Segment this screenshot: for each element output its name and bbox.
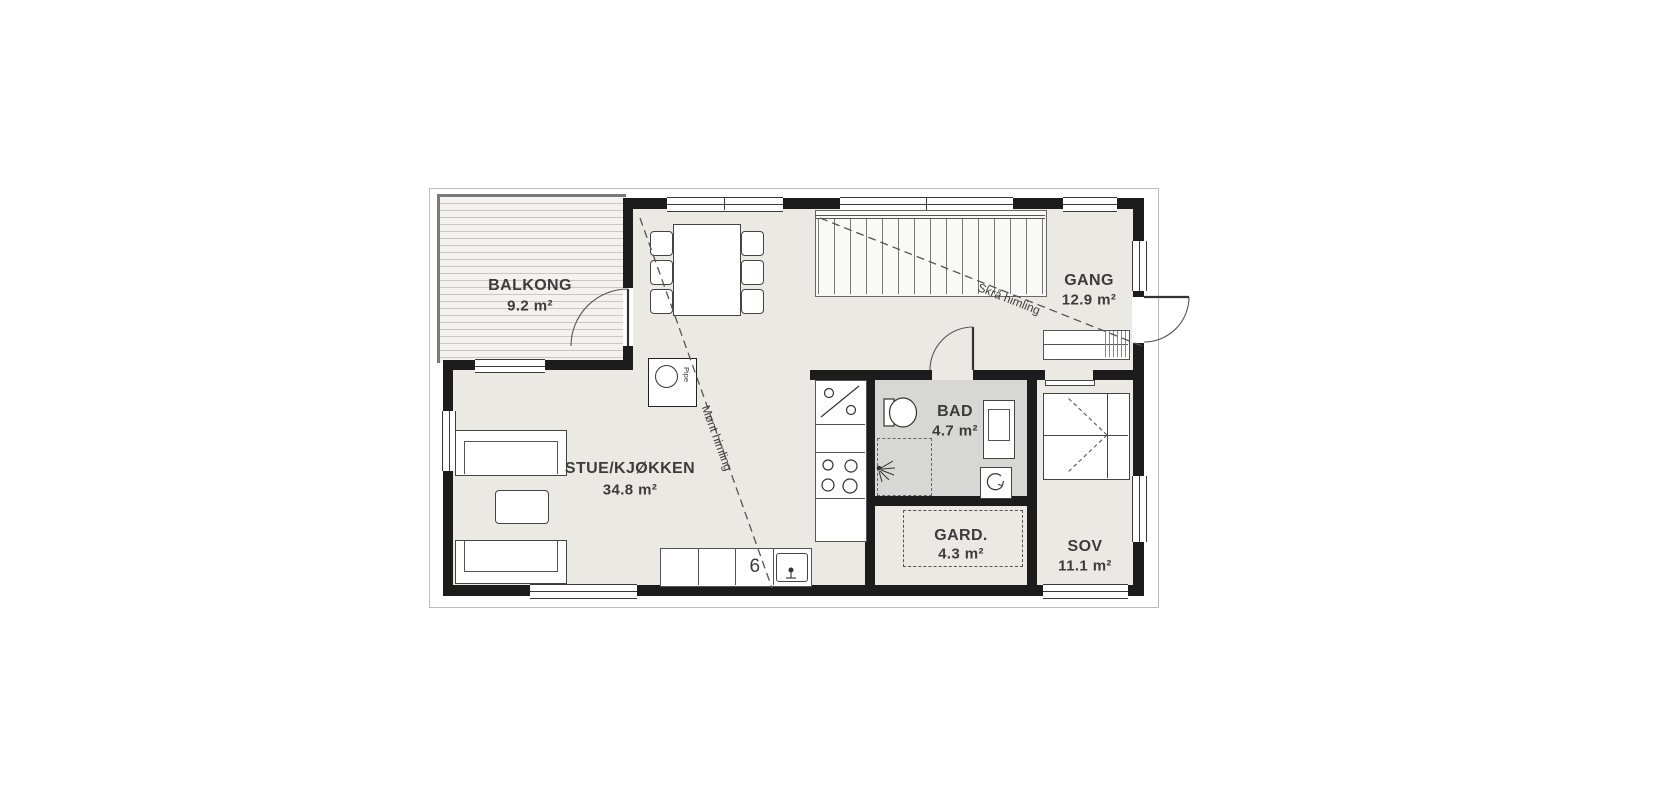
vanity-basin [988, 409, 1010, 441]
room-balkong-name: BALKONG [488, 277, 572, 295]
kitchen-counter-column [815, 380, 867, 542]
balcony-door-opening [623, 288, 633, 346]
shower-zone [877, 438, 932, 496]
sofa [455, 540, 567, 584]
room-stue-area: 34.8 m² [603, 482, 658, 499]
bed-pillow-line [1107, 393, 1108, 478]
window-right-sov [1132, 476, 1147, 542]
room-balkong-area: 9.2 m² [507, 298, 553, 315]
sov-door-leaf [1045, 380, 1095, 386]
sofa-cushion-line [464, 441, 558, 474]
counter-divider [815, 452, 865, 453]
room-gard-area: 4.3 m² [938, 546, 984, 563]
window-mullion [926, 197, 927, 210]
dining-chair [741, 231, 764, 256]
window-top-dining [667, 197, 783, 212]
bed-middle-line [1043, 435, 1128, 436]
room-bad-name: BAD [937, 403, 973, 421]
wall-balcony-boundary-lower [623, 346, 633, 370]
gang-closet-hanging-rail [1105, 331, 1127, 357]
double-bed [1043, 393, 1130, 480]
room-sov-name: SOV [1068, 538, 1103, 556]
washing-machine [980, 467, 1012, 499]
wall-bath-top-left [810, 370, 932, 380]
chimney-flue-icon [655, 365, 678, 388]
sofa [455, 430, 567, 476]
bathroom-vanity [983, 400, 1015, 459]
room-gang-name: GANG [1064, 272, 1114, 290]
stair-rail-line [815, 215, 1045, 216]
window-left-stue [442, 411, 456, 471]
window-bottom-sov [1043, 584, 1128, 599]
room-gard-name: GARD. [934, 527, 988, 545]
dining-chair [650, 231, 673, 256]
room-sov-area: 11.1 m² [1058, 558, 1112, 575]
room-bad-area: 4.7 m² [932, 423, 978, 440]
wall-sov-left [1027, 370, 1037, 585]
dining-chair [650, 260, 673, 285]
floor-plan: Pipe 6 [415, 186, 1215, 616]
dining-chair [650, 289, 673, 314]
room-gang-area: 12.9 m² [1062, 292, 1117, 309]
dining-chair [741, 289, 764, 314]
window-right-gang [1132, 241, 1147, 291]
chimney-label: Pipe [682, 367, 691, 382]
dining-table [673, 224, 741, 316]
counter-divider [698, 548, 699, 585]
stair-treads [818, 219, 1043, 294]
chimney-box: Pipe [648, 358, 697, 407]
wall-gang-sov [1093, 370, 1133, 380]
window-under-balcony [475, 359, 545, 373]
window-top-gang [1063, 197, 1117, 212]
counter-divider [735, 548, 736, 585]
entry-door-opening [1132, 297, 1145, 343]
room-stue-name: STUE/KJØKKEN [565, 460, 695, 478]
counter-divider [773, 548, 774, 585]
stove-symbol: 6 [750, 556, 761, 578]
coffee-table [495, 490, 549, 524]
wall-left [443, 360, 453, 596]
counter-divider [815, 498, 865, 499]
wall-balcony-boundary-upper [623, 198, 633, 288]
window-mullion [724, 197, 725, 210]
kitchen-sink [776, 553, 808, 582]
window-bottom-stue [530, 584, 637, 599]
sofa-cushion-line [464, 541, 558, 572]
dining-chair [741, 260, 764, 285]
counter-divider [815, 424, 865, 425]
floor-plan-canvas: Pipe 6 [0, 0, 1670, 800]
